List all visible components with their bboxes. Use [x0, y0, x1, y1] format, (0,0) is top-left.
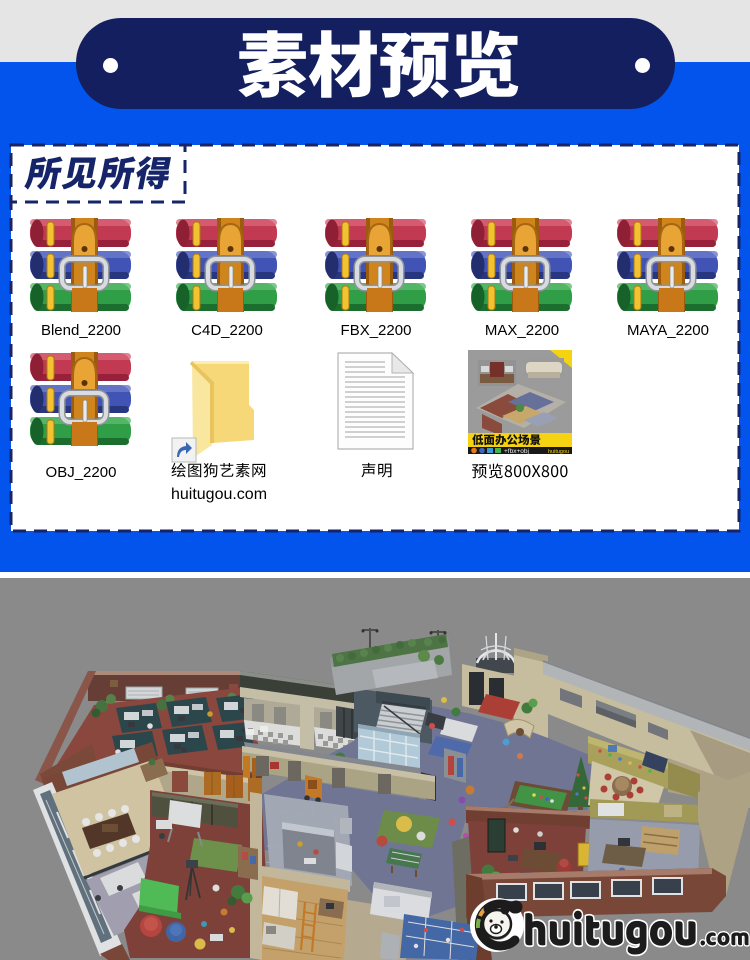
svg-text:huitugou.com: huitugou.com: [171, 486, 267, 503]
